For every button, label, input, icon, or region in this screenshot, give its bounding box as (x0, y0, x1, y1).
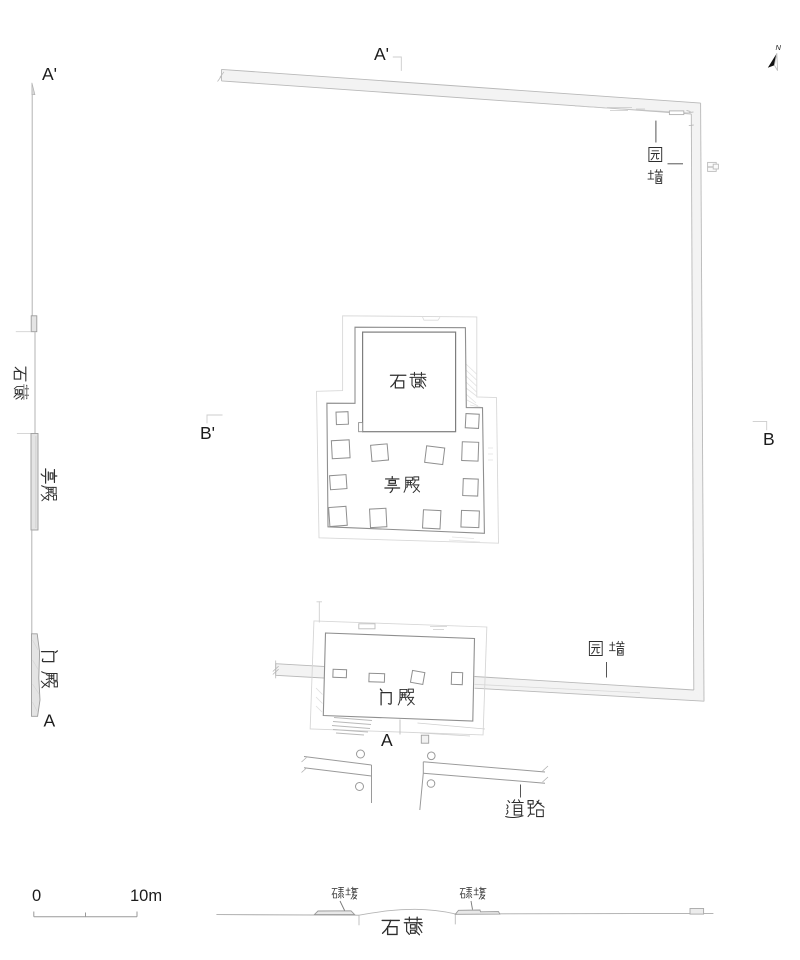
svg-text:N: N (776, 43, 782, 52)
svg-text:B: B (763, 429, 775, 449)
svg-text:A: A (44, 711, 56, 731)
svg-text:A': A' (374, 44, 389, 64)
svg-text:10m: 10m (130, 887, 162, 905)
svg-text:0: 0 (32, 887, 41, 905)
svg-text:A': A' (42, 64, 57, 84)
svg-text:A: A (381, 730, 393, 750)
svg-text:B': B' (200, 423, 215, 443)
